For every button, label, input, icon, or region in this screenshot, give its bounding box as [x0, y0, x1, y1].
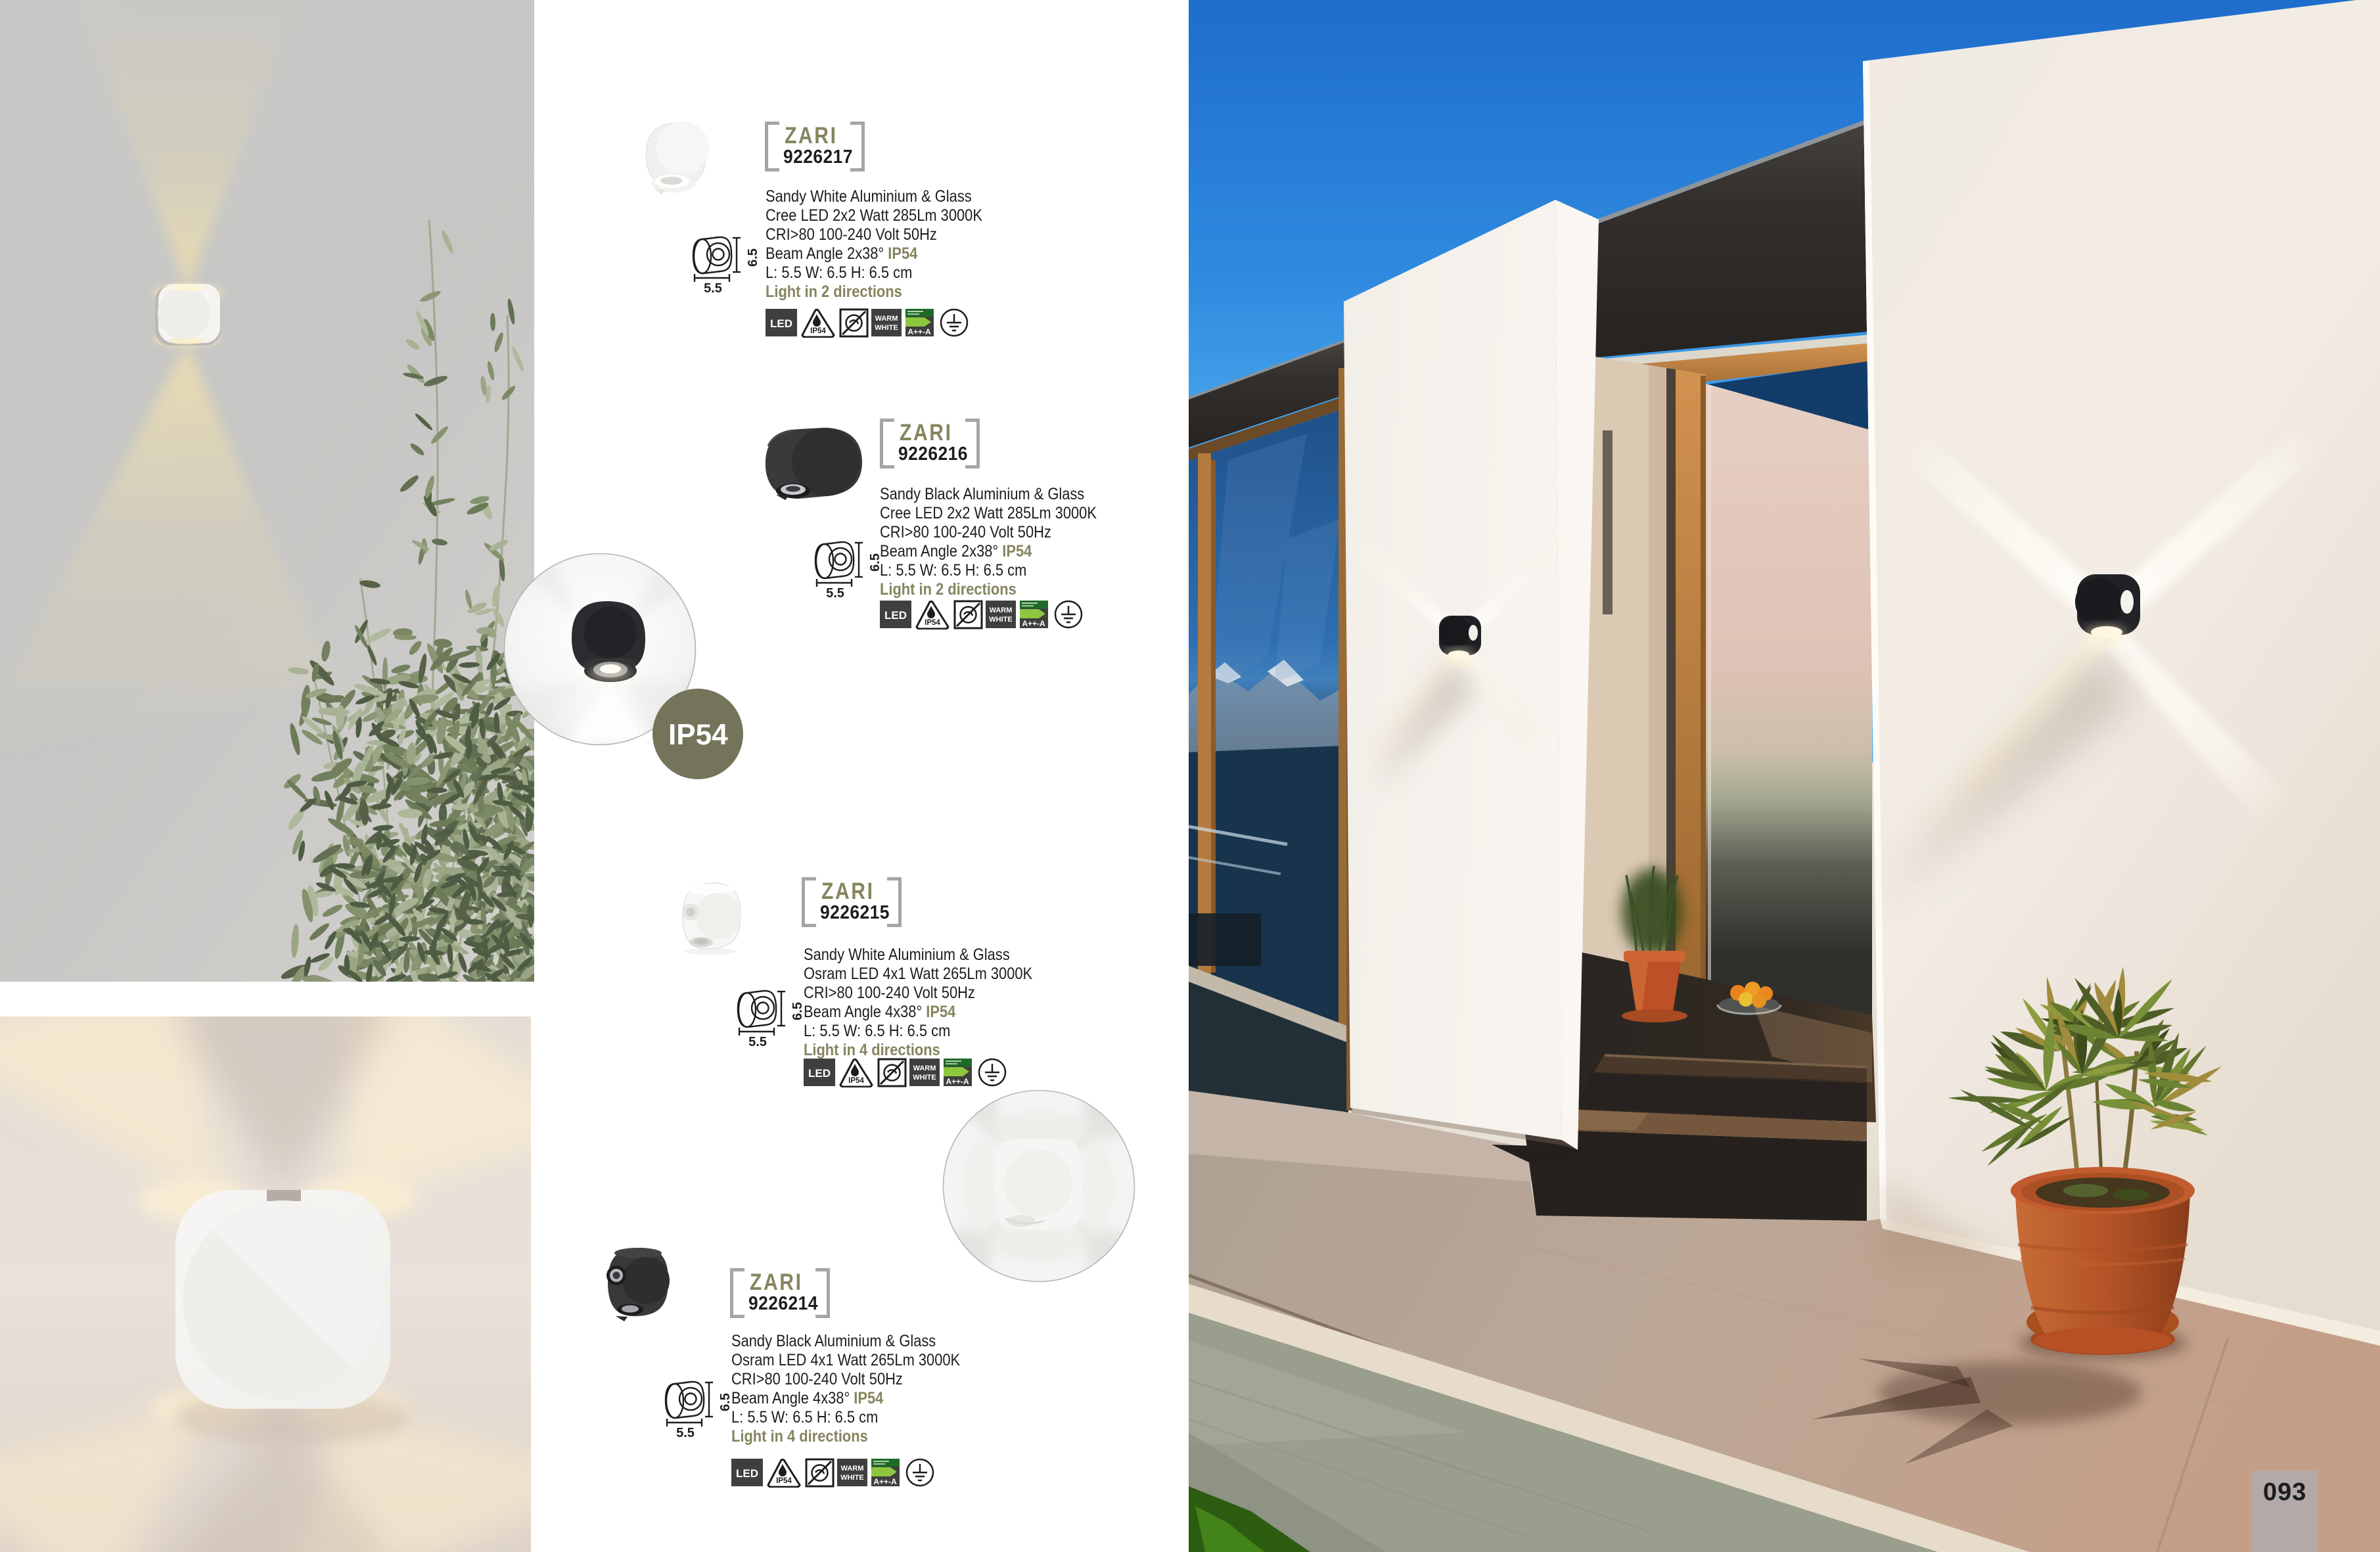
svg-text:5.5: 5.5 [748, 1035, 767, 1048]
svg-text:LED: LED [808, 1067, 831, 1080]
svg-text:WARM: WARM [841, 1465, 864, 1472]
svg-text:A++-A: A++-A [873, 1477, 897, 1486]
svg-text:5.5: 5.5 [826, 586, 844, 599]
svg-text:LED: LED [770, 317, 792, 330]
svg-text:A++-A: A++-A [907, 327, 931, 336]
svg-text:IP54: IP54 [848, 1077, 864, 1085]
svg-text:6.5: 6.5 [868, 553, 881, 572]
svg-text:5.5: 5.5 [704, 281, 722, 294]
svg-text:6.5: 6.5 [790, 1002, 803, 1020]
svg-text:5.5: 5.5 [676, 1426, 695, 1439]
svg-text:LED: LED [884, 609, 907, 622]
svg-text:WHITE: WHITE [989, 616, 1012, 624]
svg-text:A++-A: A++-A [1022, 619, 1045, 628]
svg-text:WHITE: WHITE [875, 324, 898, 332]
svg-text:IP54: IP54 [776, 1477, 792, 1485]
svg-text:WHITE: WHITE [840, 1474, 863, 1482]
svg-text:6.5: 6.5 [746, 248, 758, 267]
svg-text:WARM: WARM [875, 315, 898, 323]
svg-text:A++-A: A++-A [946, 1077, 969, 1086]
svg-text:WARM: WARM [913, 1064, 936, 1072]
svg-text:WHITE: WHITE [913, 1074, 936, 1082]
svg-text:WARM: WARM [990, 606, 1013, 614]
svg-text:LED: LED [736, 1467, 758, 1480]
svg-text:IP54: IP54 [925, 619, 940, 627]
svg-text:6.5: 6.5 [718, 1393, 731, 1411]
svg-text:IP54: IP54 [810, 327, 826, 335]
